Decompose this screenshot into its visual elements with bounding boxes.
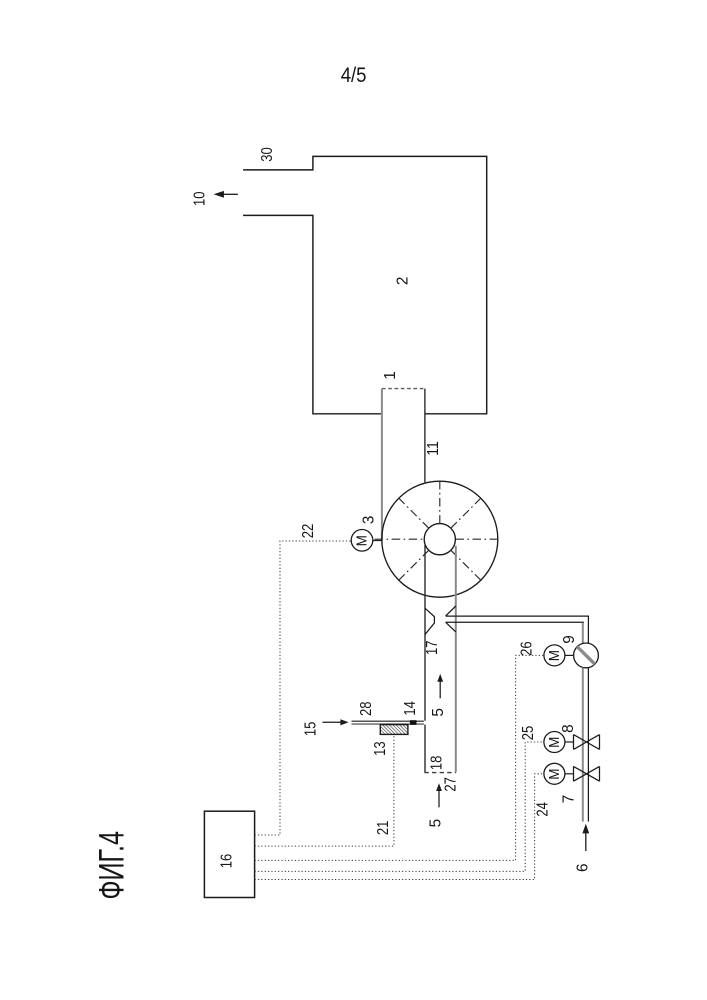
svg-text:26: 26	[519, 641, 536, 656]
svg-text:3: 3	[361, 516, 378, 525]
svg-text:M: M	[354, 535, 371, 546]
svg-text:10: 10	[192, 191, 209, 206]
svg-text:30: 30	[259, 147, 276, 162]
svg-text:24: 24	[535, 802, 552, 817]
svg-text:5: 5	[427, 819, 444, 828]
svg-text:1: 1	[382, 371, 399, 380]
svg-text:M: M	[546, 768, 563, 779]
svg-text:9: 9	[561, 635, 578, 644]
svg-text:4/5: 4/5	[341, 63, 367, 87]
svg-text:22: 22	[300, 524, 317, 539]
svg-text:6: 6	[574, 864, 591, 873]
svg-text:25: 25	[520, 726, 537, 741]
svg-text:M: M	[546, 650, 563, 661]
svg-text:13: 13	[372, 741, 389, 756]
svg-text:17: 17	[424, 641, 441, 656]
svg-text:14: 14	[402, 701, 419, 716]
svg-text:27: 27	[442, 777, 459, 792]
svg-text:28: 28	[358, 702, 375, 717]
svg-text:5: 5	[430, 708, 447, 717]
svg-text:2: 2	[395, 277, 412, 286]
svg-text:15: 15	[303, 722, 320, 737]
svg-text:18: 18	[429, 756, 446, 771]
svg-text:M: M	[546, 737, 563, 748]
svg-text:7: 7	[560, 795, 577, 804]
svg-text:8: 8	[560, 724, 577, 733]
svg-text:21: 21	[375, 821, 392, 836]
svg-text:11: 11	[425, 441, 442, 456]
svg-text:16: 16	[218, 854, 235, 869]
svg-text:ФИГ.4: ФИГ.4	[93, 831, 132, 900]
